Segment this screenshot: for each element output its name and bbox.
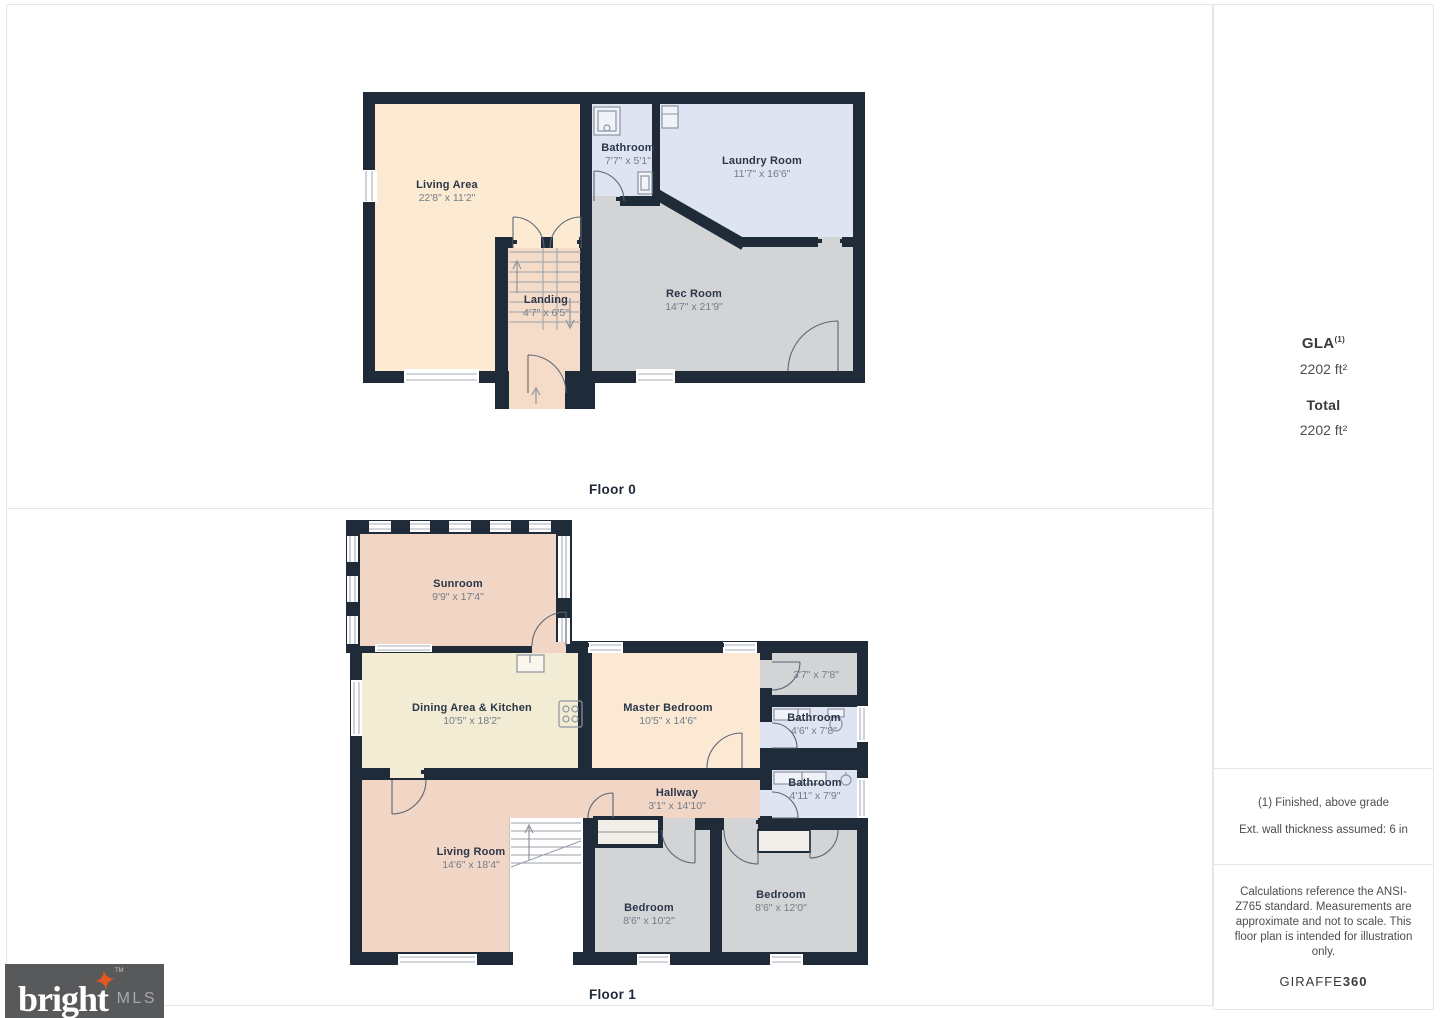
room-label-bedroom-2: Bedroom 8'6" x 12'0" <box>755 889 807 914</box>
svg-text:3'1" x 14'10": 3'1" x 14'10" <box>648 800 706 812</box>
floor0-label: Floor 0 <box>340 482 885 497</box>
svg-text:22'8" x 11'2": 22'8" x 11'2" <box>419 192 476 204</box>
svg-text:Bathroom: Bathroom <box>787 712 841 724</box>
room-label-rec-room: Rec Room 14'7" x 21'9" <box>665 288 723 313</box>
svg-text:7'7" x 5'1": 7'7" x 5'1" <box>605 155 651 167</box>
room-label-sunroom: Sunroom 9'9" x 17'4" <box>432 578 484 603</box>
svg-text:Bathroom: Bathroom <box>788 777 842 789</box>
floor0-plan: Living Area 22'8" x 11'2" Bathroom 7'7" … <box>340 85 885 420</box>
disclaimer-section: Calculations reference the ANSI-Z765 sta… <box>1214 865 1433 1009</box>
room-label-bathroom-upper: Bathroom 4'6" x 7'8" <box>787 712 841 737</box>
footnotes: (1) Finished, above grade Ext. wall thic… <box>1214 769 1433 865</box>
svg-text:Landing: Landing <box>524 294 568 306</box>
svg-text:10'5" x 14'6": 10'5" x 14'6" <box>639 715 697 727</box>
mls-wordmark: MLS <box>117 990 157 1008</box>
svg-text:Dining Area & Kitchen: Dining Area & Kitchen <box>412 702 532 714</box>
room-label-closet: 3'7" x 7'8" <box>793 669 839 681</box>
svg-text:10'5" x 18'2": 10'5" x 18'2" <box>443 715 501 727</box>
svg-text:Living Room: Living Room <box>437 846 506 858</box>
svg-text:4'6" x 7'8": 4'6" x 7'8" <box>791 725 837 737</box>
measurements-sidebar: GLA(1) 2202 ft² Total 2202 ft² (1) Finis… <box>1213 4 1434 1010</box>
svg-text:9'9" x 17'4": 9'9" x 17'4" <box>432 591 484 603</box>
floor1-plan: Sunroom 9'9" x 17'4" Dining Area & Kitch… <box>340 515 885 970</box>
gla-value: 2202 ft² <box>1300 361 1347 377</box>
room-label-laundry-room: Laundry Room 11'7" x 16'6" <box>722 155 802 180</box>
svg-text:4'11" x 7'9": 4'11" x 7'9" <box>790 790 841 802</box>
room-label-bathroom-lower: Bathroom 4'11" x 7'9" <box>788 777 842 802</box>
svg-text:4'7" x 6'5": 4'7" x 6'5" <box>523 307 569 319</box>
svg-text:Sunroom: Sunroom <box>433 578 483 590</box>
room-label-landing: Landing 4'7" x 6'5" <box>523 294 569 319</box>
area-summary: GLA(1) 2202 ft² Total 2202 ft² <box>1214 5 1433 769</box>
gla-label: GLA(1) <box>1302 335 1345 352</box>
star-icon <box>95 970 115 990</box>
svg-text:Bedroom: Bedroom <box>756 889 806 901</box>
total-value: 2202 ft² <box>1300 422 1347 438</box>
svg-text:11'7" x 16'6": 11'7" x 16'6" <box>734 168 791 180</box>
svg-text:3'7" x 7'8": 3'7" x 7'8" <box>793 669 839 681</box>
room-label-living-room: Living Room 14'6" x 18'4" <box>437 846 506 871</box>
svg-text:Laundry Room: Laundry Room <box>722 155 802 167</box>
svg-text:8'6" x 10'2": 8'6" x 10'2" <box>623 915 675 927</box>
svg-text:14'7" x 21'9": 14'7" x 21'9" <box>665 301 723 313</box>
gla-footnote-marker: (1) <box>1334 335 1345 344</box>
svg-text:Bedroom: Bedroom <box>624 902 674 914</box>
svg-text:Living Area: Living Area <box>416 179 478 191</box>
svg-text:8'6" x 12'0": 8'6" x 12'0" <box>755 902 807 914</box>
svg-text:14'6" x 18'4": 14'6" x 18'4" <box>442 859 500 871</box>
giraffe360-brand: GIRAFFE360 <box>1279 974 1367 989</box>
footnote-finished: (1) Finished, above grade <box>1214 797 1433 809</box>
floor-section-divider <box>6 508 1212 509</box>
disclaimer-text: Calculations reference the ANSI-Z765 sta… <box>1235 885 1413 960</box>
bright-mls-logo: bright TM MLS <box>5 964 164 1018</box>
room-label-bathroom-f0: Bathroom 7'7" x 5'1" <box>601 142 655 167</box>
room-label-bedroom-1: Bedroom 8'6" x 10'2" <box>623 902 675 927</box>
page: Living Area 22'8" x 11'2" Bathroom 7'7" … <box>0 0 1440 1018</box>
svg-text:Hallway: Hallway <box>656 787 699 799</box>
trademark-symbol: TM <box>115 968 124 974</box>
floor1-label: Floor 1 <box>340 987 885 1002</box>
footnote-wall-thickness: Ext. wall thickness assumed: 6 in <box>1214 824 1433 836</box>
total-label: Total <box>1307 397 1341 413</box>
room-label-living-area: Living Area 22'8" x 11'2" <box>416 179 478 204</box>
svg-text:Master Bedroom: Master Bedroom <box>623 702 713 714</box>
room-label-hallway: Hallway 3'1" x 14'10" <box>648 787 706 812</box>
svg-text:Rec Room: Rec Room <box>666 288 722 300</box>
svg-text:Bathroom: Bathroom <box>601 142 655 154</box>
